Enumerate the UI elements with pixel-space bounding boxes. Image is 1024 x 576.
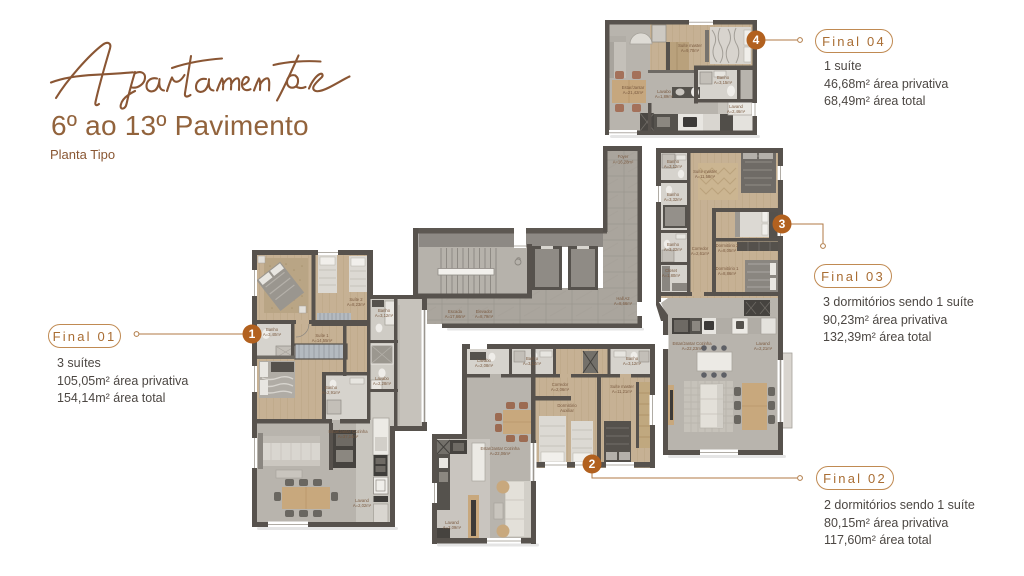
svg-text:A=17,66m²: A=17,66m² (445, 314, 466, 319)
svg-text:A=3,32m²: A=3,32m² (664, 247, 683, 252)
svg-text:A=14,55m²: A=14,55m² (312, 338, 333, 343)
svg-text:A=2,21m²: A=2,21m² (754, 346, 773, 351)
svg-text:3: 3 (779, 217, 786, 231)
svg-text:A=2,09m²: A=2,09m² (443, 525, 462, 530)
svg-text:A=8,05m²: A=8,05m² (718, 248, 737, 253)
svg-text:Auxiliar: Auxiliar (560, 408, 574, 413)
svg-text:A=11,58m²: A=11,58m² (695, 174, 716, 179)
svg-text:A=3,32m²: A=3,32m² (664, 197, 683, 202)
svg-text:A=2,46m²: A=2,46m² (727, 109, 746, 114)
svg-text:A=8,79m²: A=8,79m² (475, 314, 494, 319)
svg-text:A=2,08m²: A=2,08m² (475, 363, 494, 368)
svg-text:A=21,42m²: A=21,42m² (623, 90, 644, 95)
svg-text:A=1,80m²: A=1,80m² (662, 273, 681, 278)
svg-text:A=3,12m²: A=3,12m² (664, 164, 683, 169)
svg-text:A=9,70m²: A=9,70m² (681, 48, 700, 53)
svg-text:A=8,86m²: A=8,86m² (718, 271, 737, 276)
svg-text:A=2,28m²: A=2,28m² (373, 381, 392, 386)
svg-text:A=3,12m²: A=3,12m² (523, 361, 542, 366)
svg-text:Foyer: Foyer (618, 154, 629, 159)
svg-text:A=3,12m²: A=3,12m² (623, 361, 642, 366)
svg-text:A=2,02m²: A=2,02m² (353, 503, 372, 508)
svg-text:A=22,23m²: A=22,23m² (682, 346, 703, 351)
svg-text:A=8,66m²: A=8,66m² (614, 301, 633, 306)
svg-text:A=3,40m²: A=3,40m² (263, 332, 282, 337)
svg-text:A=22,06m²: A=22,06m² (490, 451, 511, 456)
svg-text:A=2,91m²: A=2,91m² (322, 390, 341, 395)
svg-text:A=2,61m²: A=2,61m² (691, 251, 710, 256)
svg-text:4: 4 (753, 33, 760, 47)
svg-text:1: 1 (249, 327, 256, 341)
svg-text:A=3,12m²: A=3,12m² (375, 313, 394, 318)
svg-text:A=8,23m²: A=8,23m² (347, 302, 366, 307)
svg-text:A=2,06m²: A=2,06m² (551, 387, 570, 392)
svg-text:2: 2 (589, 457, 596, 471)
svg-text:A=11,21m²: A=11,21m² (612, 389, 633, 394)
svg-text:A=1,89m²: A=1,89m² (655, 94, 674, 99)
svg-text:A=37,14m²: A=37,14m² (338, 434, 359, 439)
svg-text:A=3,15m²: A=3,15m² (714, 80, 733, 85)
svg-text:A=16,28m²: A=16,28m² (613, 160, 634, 165)
